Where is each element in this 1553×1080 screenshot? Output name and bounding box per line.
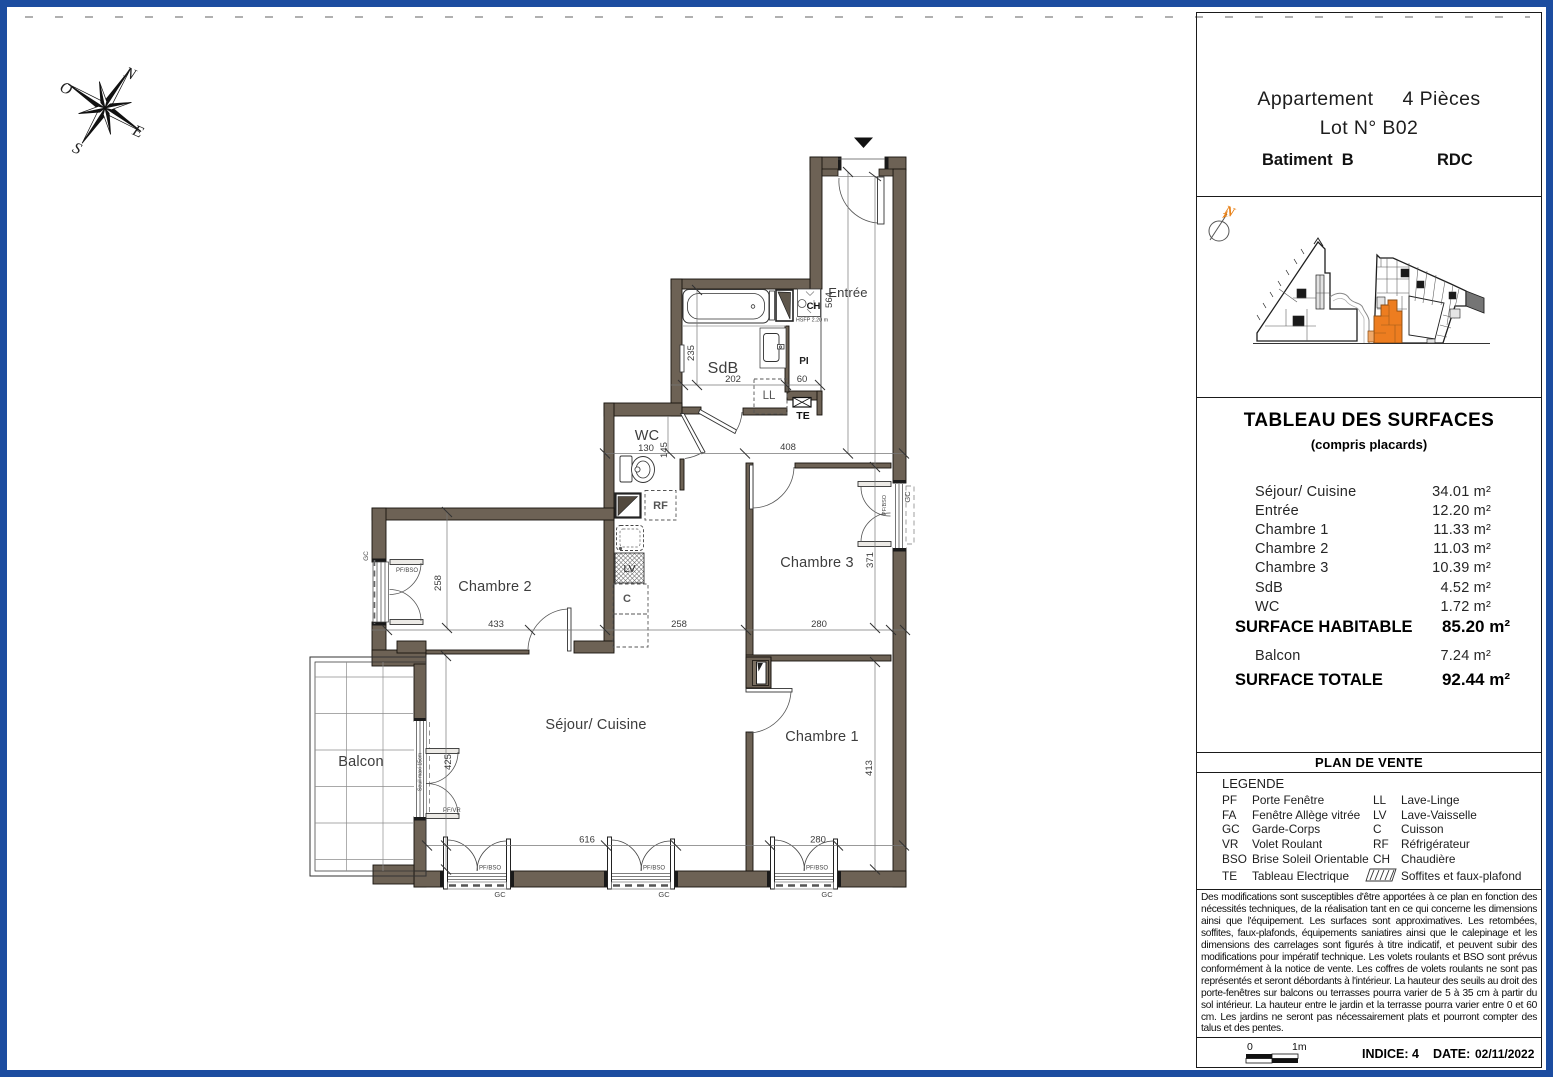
svg-text:S: S [70, 139, 84, 158]
svg-text:CH: CH [807, 301, 821, 312]
svg-text:Chambre 3: Chambre 3 [780, 555, 854, 571]
svg-text:WC: WC [635, 428, 660, 444]
svg-text:433: 433 [488, 619, 504, 630]
svg-text:Entrée: Entrée [828, 285, 868, 300]
svg-text:280: 280 [810, 835, 826, 846]
svg-text:Balcon: Balcon [338, 754, 384, 770]
svg-text:SdB: SdB [708, 360, 739, 377]
svg-text:PF/BSO: PF/BSO [882, 494, 888, 515]
svg-text:PF/BSO: PF/BSO [479, 866, 501, 872]
svg-text:60: 60 [797, 374, 808, 385]
svg-text:130: 130 [638, 443, 654, 454]
svg-text:C: C [623, 593, 631, 605]
svg-text:GC: GC [494, 890, 506, 899]
svg-text:258: 258 [671, 619, 687, 630]
svg-text:N: N [1221, 203, 1238, 221]
svg-text:TE: TE [796, 410, 809, 422]
svg-text:371: 371 [865, 552, 876, 568]
svg-text:O: O [57, 79, 75, 99]
svg-text:408: 408 [780, 442, 796, 453]
svg-text:PI: PI [799, 356, 809, 367]
svg-text:258: 258 [433, 575, 444, 591]
svg-text:GC: GC [363, 551, 370, 561]
svg-text:0: 0 [1247, 1041, 1253, 1053]
svg-text:280: 280 [811, 619, 827, 630]
svg-text:145: 145 [659, 442, 670, 458]
svg-text:616: 616 [579, 835, 595, 846]
svg-text:Seuil maxi 15cm: Seuil maxi 15cm [418, 753, 424, 791]
svg-text:HSFP 2.20 m: HSFP 2.20 m [796, 318, 829, 324]
svg-text:GC: GC [821, 890, 833, 899]
svg-text:1m: 1m [1292, 1041, 1307, 1053]
svg-text:PF/BSO: PF/BSO [396, 568, 418, 574]
svg-text:RF: RF [653, 500, 668, 512]
svg-text:LL: LL [763, 390, 776, 402]
svg-text:LV: LV [623, 563, 635, 575]
svg-text:GC: GC [903, 491, 912, 503]
svg-text:413: 413 [864, 760, 875, 776]
svg-text:GC: GC [658, 890, 670, 899]
svg-text:425: 425 [443, 754, 454, 770]
svg-text:235: 235 [686, 345, 697, 361]
svg-text:Séjour/ Cuisine: Séjour/ Cuisine [545, 717, 646, 733]
svg-text:Chambre 2: Chambre 2 [458, 579, 532, 595]
svg-text:PF/BSO: PF/BSO [806, 866, 828, 872]
svg-text:Chambre 1: Chambre 1 [785, 729, 859, 745]
svg-text:PF/BSO: PF/BSO [643, 866, 665, 872]
